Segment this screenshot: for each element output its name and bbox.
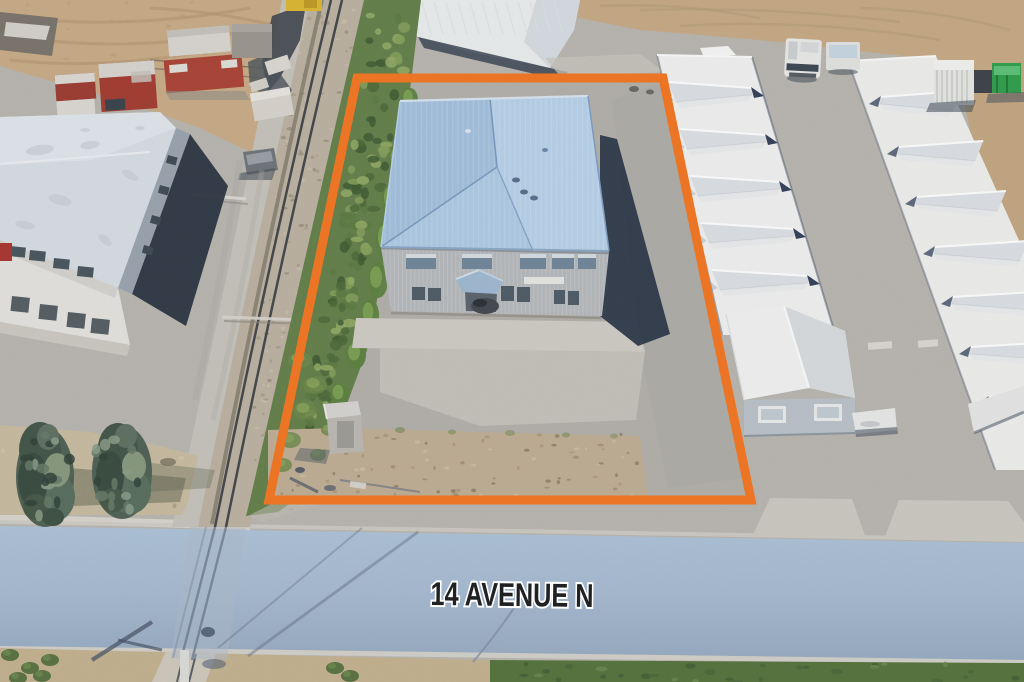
svg-text:14 AVENUE N: 14 AVENUE N	[430, 575, 593, 614]
